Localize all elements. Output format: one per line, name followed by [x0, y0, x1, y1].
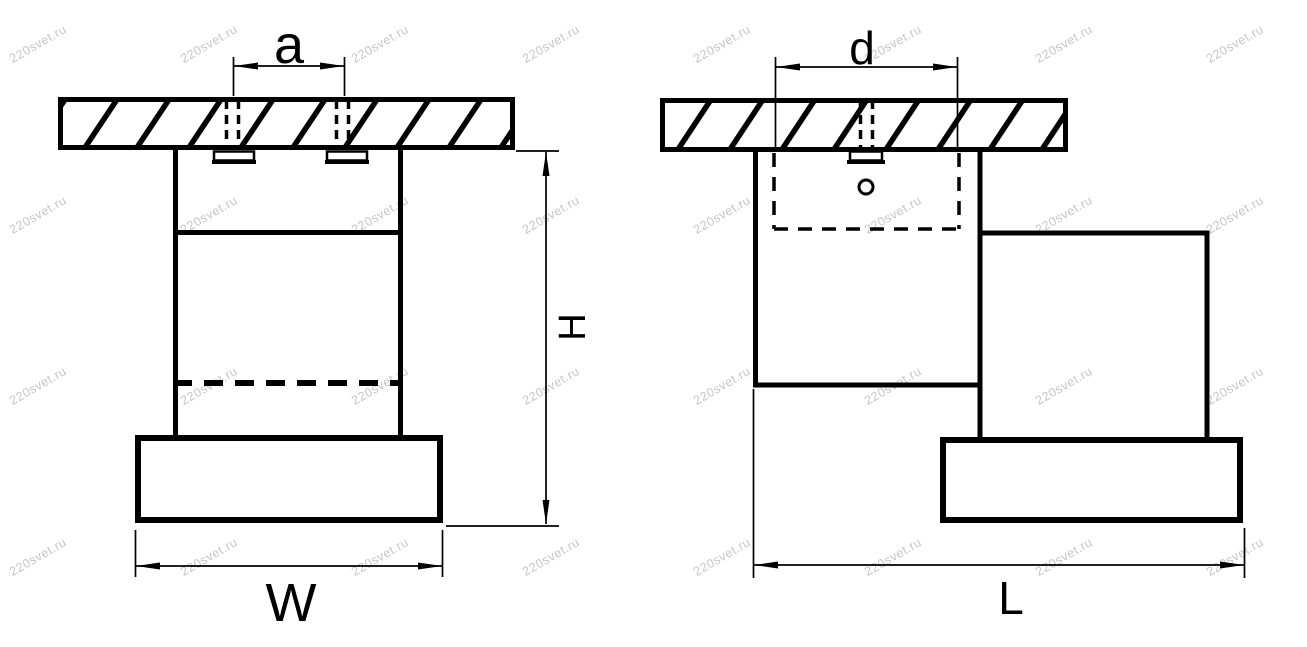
- dim-label-l: L: [998, 572, 1024, 624]
- dim-label-d: d: [849, 22, 875, 74]
- dimension-drawing: a H W: [0, 0, 1307, 647]
- front-view: a H W: [30, 15, 594, 633]
- arrow-left: [234, 63, 258, 70]
- dim-label-a: a: [274, 15, 305, 75]
- side-ceiling: [623, 98, 1076, 154]
- dimension-a: a: [234, 15, 345, 96]
- dim-label-w: W: [266, 573, 317, 633]
- arrow-left: [776, 64, 800, 71]
- arrow-right: [418, 563, 442, 570]
- dim-label-h: H: [552, 313, 594, 340]
- arrow-left: [754, 562, 778, 569]
- front-mount-clips: [212, 152, 369, 163]
- front-ceiling: [30, 98, 534, 152]
- side-mount-clip: [847, 152, 885, 163]
- arrow-up: [543, 152, 550, 176]
- arrow-left: [136, 563, 160, 570]
- mount-clip: [850, 152, 882, 161]
- arrow-right: [320, 63, 344, 70]
- side-body: [753, 152, 1210, 440]
- arrow-right: [933, 64, 957, 71]
- arrow-down: [543, 500, 550, 524]
- front-lamp-head: [138, 438, 440, 520]
- mount-clip: [327, 152, 367, 161]
- front-ceiling-slab: [61, 100, 513, 148]
- side-lamp-head: [943, 440, 1240, 520]
- dimension-w: W: [136, 530, 443, 633]
- front-body: [173, 150, 403, 436]
- side-view: d L: [623, 22, 1245, 624]
- technical-drawing-page: 220svet.ru220svet.ru220svet.ru220svet.ru…: [0, 0, 1307, 647]
- side-mount-plate-hidden: [774, 153, 959, 229]
- mount-clip: [214, 152, 254, 161]
- arrow-right: [1220, 562, 1244, 569]
- dimension-h: H: [446, 151, 594, 526]
- screw-hole: [859, 180, 873, 194]
